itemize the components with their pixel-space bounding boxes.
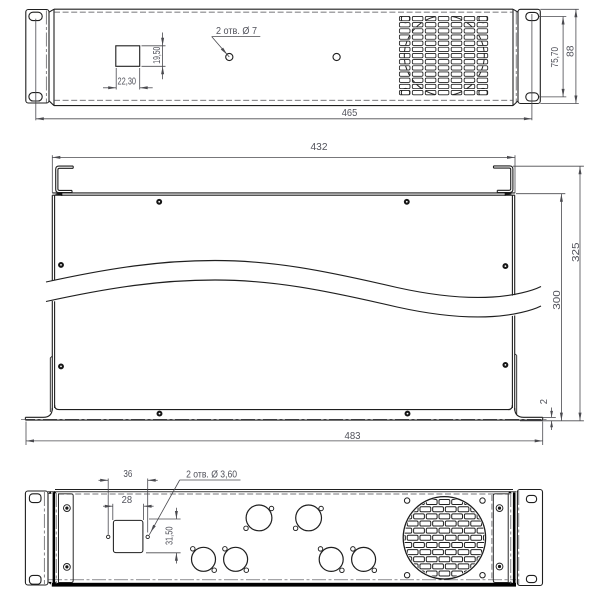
svg-text:22,30: 22,30 — [118, 77, 137, 88]
svg-text:465: 465 — [342, 108, 358, 119]
svg-text:31,50: 31,50 — [164, 526, 175, 545]
svg-text:325: 325 — [571, 242, 582, 262]
svg-text:2 отв. Ø 7: 2 отв. Ø 7 — [216, 26, 257, 37]
svg-text:88: 88 — [565, 45, 576, 57]
svg-text:300: 300 — [552, 290, 563, 310]
svg-text:2 отв. Ø 3,60: 2 отв. Ø 3,60 — [186, 469, 237, 480]
svg-text:75,70: 75,70 — [550, 47, 561, 68]
svg-text:36: 36 — [123, 469, 132, 480]
svg-text:2: 2 — [539, 399, 550, 404]
svg-text:19,50: 19,50 — [152, 47, 163, 64]
svg-text:483: 483 — [345, 431, 361, 442]
svg-text:432: 432 — [311, 142, 328, 153]
svg-text:28: 28 — [122, 495, 133, 506]
